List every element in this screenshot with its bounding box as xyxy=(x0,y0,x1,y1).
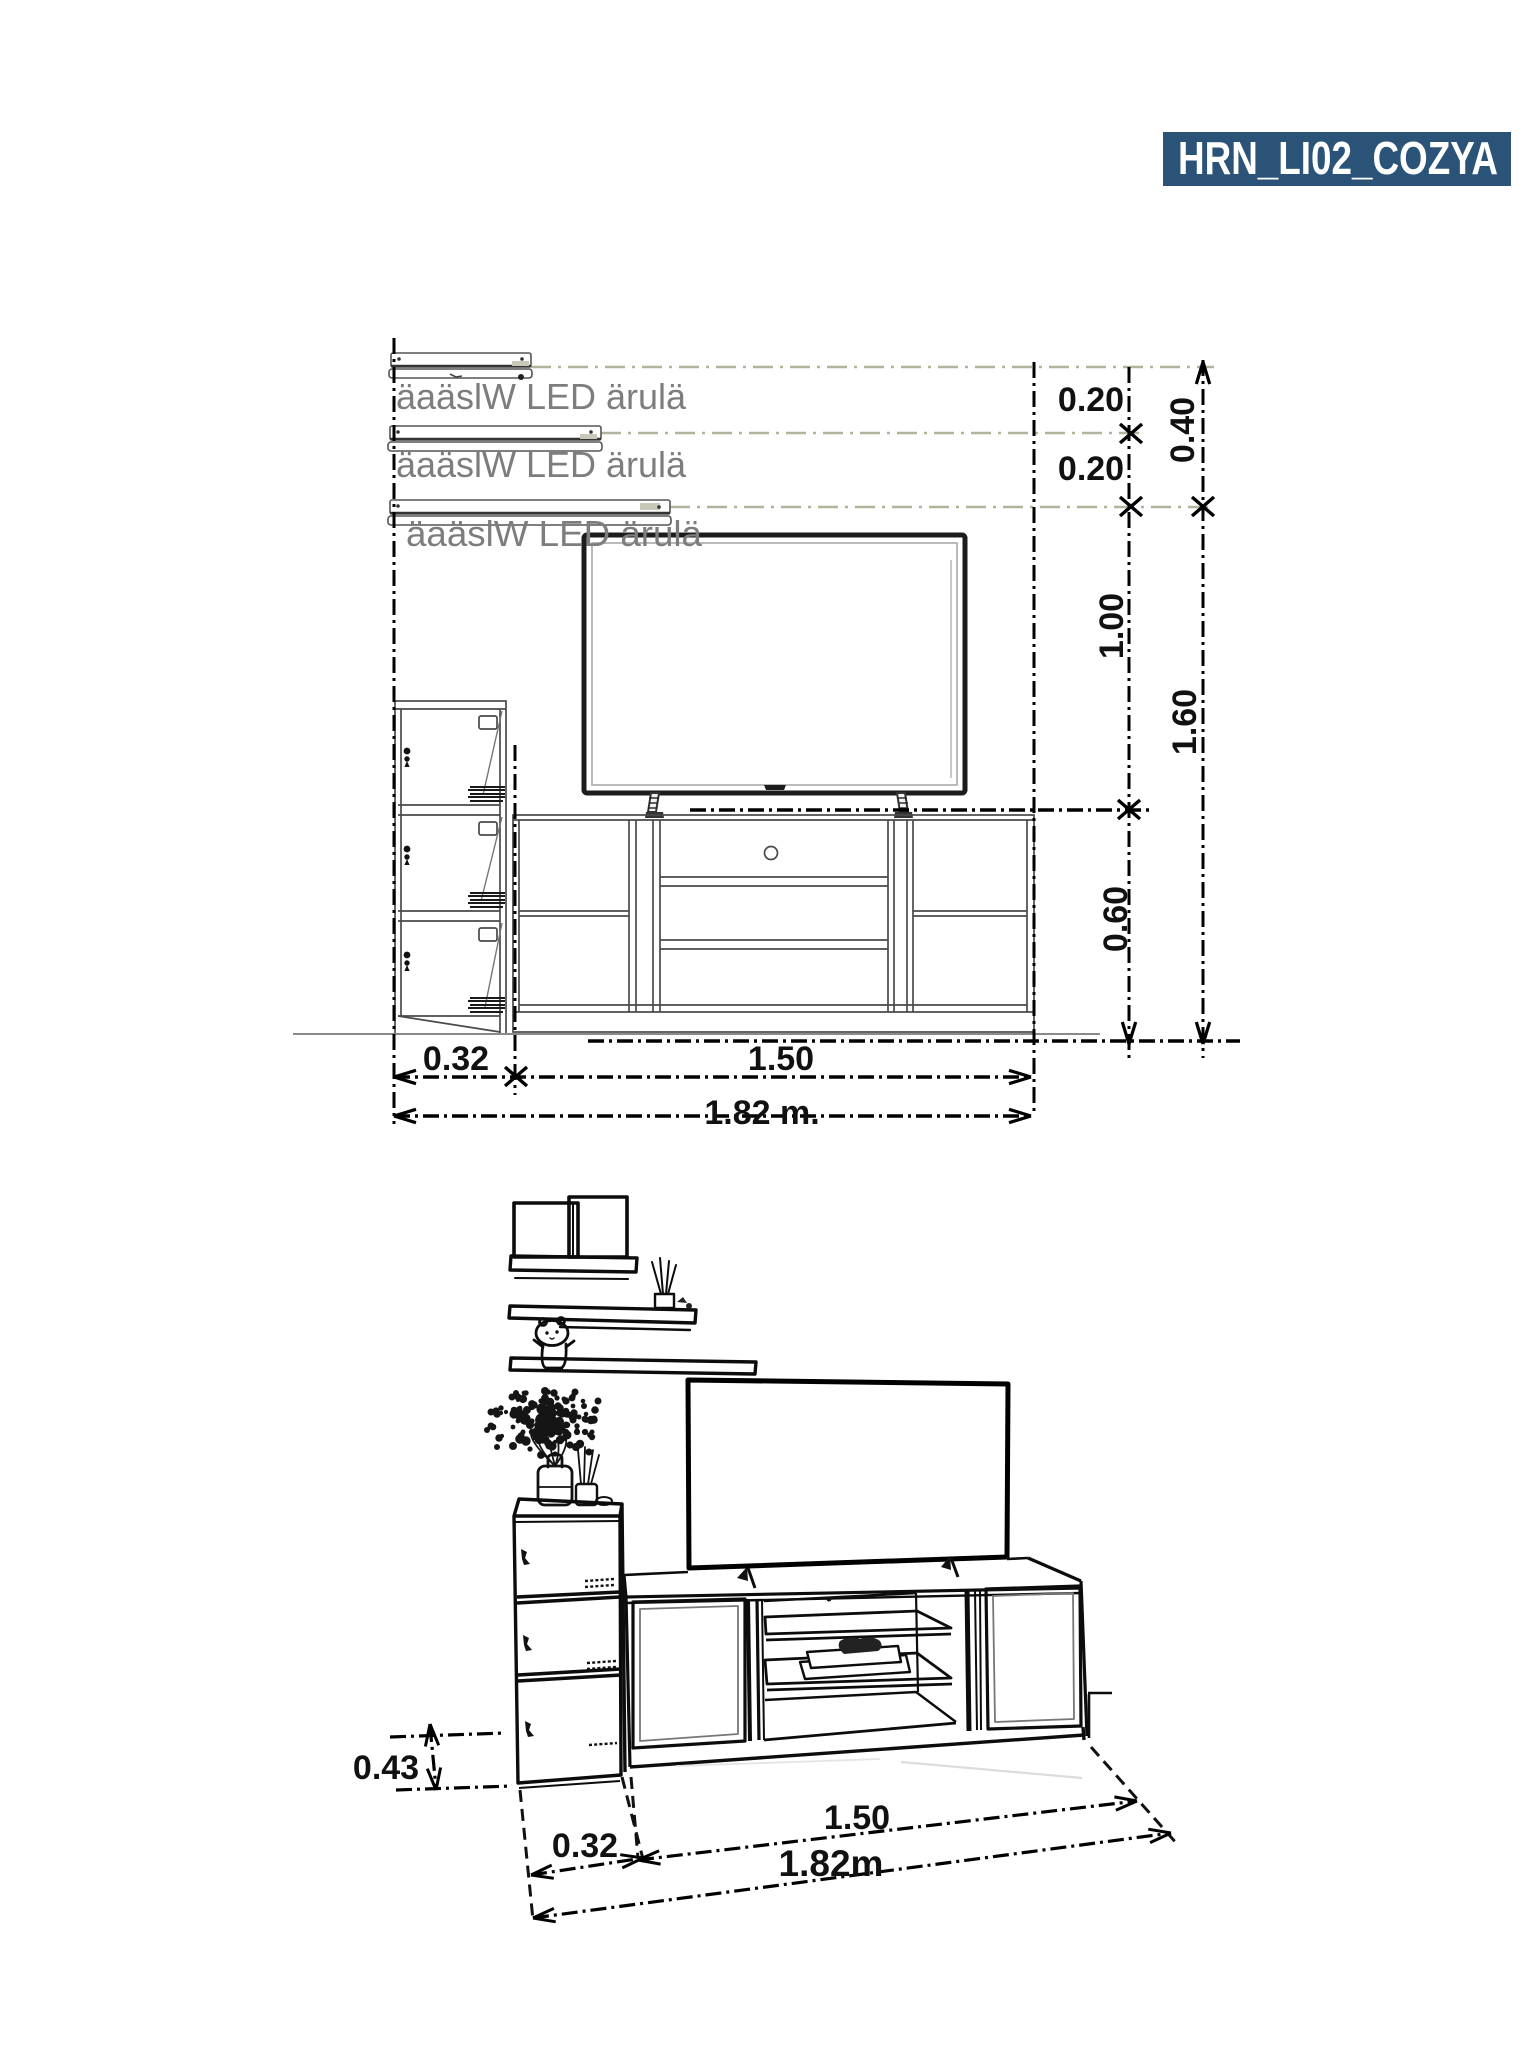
svg-text:äaäslW LED ärulä: äaäslW LED ärulä xyxy=(396,444,687,485)
svg-text:1.60: 1.60 xyxy=(1166,689,1204,755)
svg-text:1.82 m.: 1.82 m. xyxy=(704,1094,819,1132)
svg-text:0.40: 0.40 xyxy=(1164,397,1202,463)
svg-text:0.60: 0.60 xyxy=(1097,886,1135,952)
svg-text:1.50: 1.50 xyxy=(824,1799,890,1837)
svg-text:HRN_LI02_COZYA: HRN_LI02_COZYA xyxy=(1178,132,1498,184)
svg-text:0.43: 0.43 xyxy=(353,1749,419,1787)
svg-text:1.00: 1.00 xyxy=(1093,593,1131,659)
svg-text:0.20: 0.20 xyxy=(1058,450,1124,488)
svg-text:1.50: 1.50 xyxy=(748,1040,814,1078)
svg-text:0.20: 0.20 xyxy=(1058,381,1124,419)
svg-text:0.32: 0.32 xyxy=(423,1040,489,1078)
svg-text:äaäslW LED ärulä: äaäslW LED ärulä xyxy=(406,513,703,554)
svg-text:1.82m: 1.82m xyxy=(779,1843,884,1884)
svg-text:äaäslW LED ärulä: äaäslW LED ärulä xyxy=(396,376,687,417)
svg-text:0.32: 0.32 xyxy=(552,1827,618,1865)
